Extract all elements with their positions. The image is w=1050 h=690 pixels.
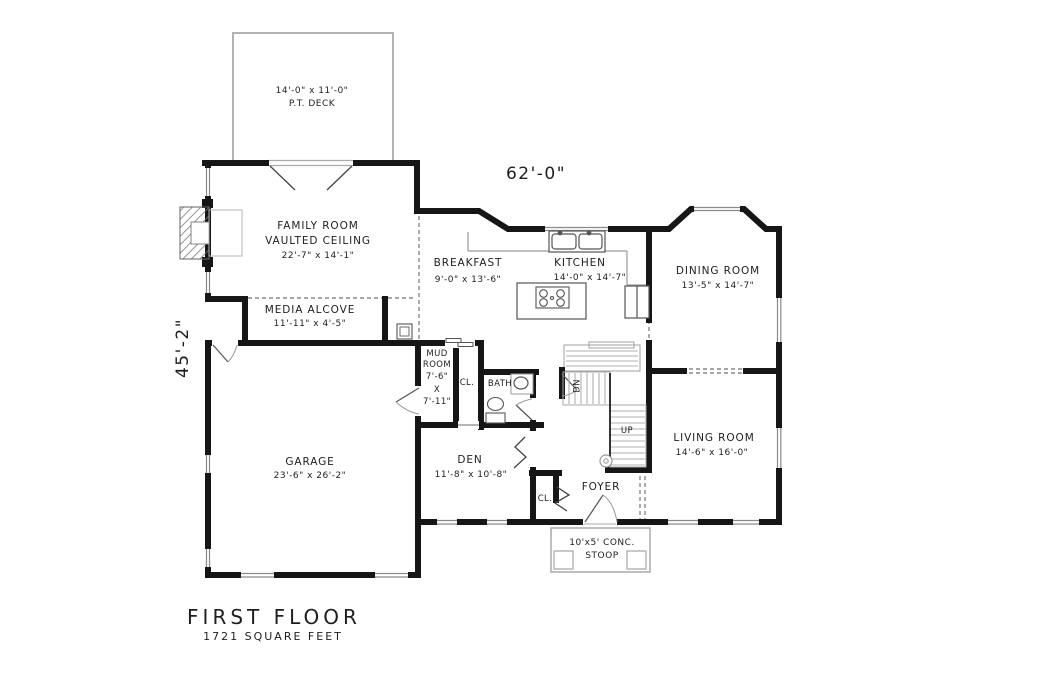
dining-room-label: DINING ROOM <box>676 266 760 277</box>
stoop-outline <box>551 528 650 572</box>
garage-mud-door <box>396 386 422 416</box>
media-alcove-dims: 11'-11" x 4'-5" <box>274 320 347 329</box>
hearth <box>209 210 242 256</box>
floor-plan-drawing <box>0 0 1050 690</box>
garage-label: GARAGE <box>285 457 334 468</box>
bay-window <box>694 205 740 213</box>
overall-depth-dimension: 45'-2" <box>175 318 193 378</box>
stairs-up-label: UP <box>621 427 633 436</box>
living-side-window <box>775 428 783 468</box>
media-alcove-label: MEDIA ALCOVE <box>265 305 355 316</box>
stoop-dims: 10'x5' CONC. <box>569 539 635 548</box>
deck-outline <box>233 33 393 161</box>
bath-label: BATH <box>488 380 512 389</box>
family-room-dims: 22'-7" x 14'-1" <box>282 252 355 261</box>
mud-closet-label: CL. <box>460 379 475 388</box>
stoop-post-right <box>627 551 646 569</box>
mud-room-dims-2: 7'-11" <box>423 398 451 407</box>
dining-side-window <box>775 298 783 342</box>
breakfast-dims: 9'-0" x 13'-6" <box>435 276 501 285</box>
breakfast-label: BREAKFAST <box>434 258 503 269</box>
foyer-living-opening <box>640 476 645 519</box>
mud-closet-opening <box>458 421 479 429</box>
overall-width-dimension: 62'-0" <box>506 166 566 184</box>
pantry-shelves <box>564 342 640 371</box>
mud-room-dims-1: 7'-6" <box>426 373 448 382</box>
mud-room-label-2: ROOM <box>423 361 451 370</box>
plan-title: FIRST FLOOR <box>187 607 361 628</box>
living-room-label: LIVING ROOM <box>673 433 754 444</box>
den-opening-zigzag <box>514 437 526 468</box>
kitchen-dims: 14'-0" x 14'-7" <box>554 274 627 283</box>
bath-door <box>516 398 537 420</box>
mud-room-dims-x: X <box>434 386 440 395</box>
media-equipment <box>397 324 412 339</box>
front-door <box>583 495 617 527</box>
firebox <box>191 222 209 244</box>
kitchen-island <box>517 283 586 319</box>
stairs-up-icon <box>610 405 646 467</box>
stairs-down-label: DN <box>574 379 583 393</box>
dining-room-dims: 13'-5" x 14'-7" <box>682 282 755 291</box>
stoop-name: STOOP <box>585 552 618 561</box>
deck-door <box>269 158 353 190</box>
family-room-label: FAMILY ROOM <box>277 221 358 232</box>
garage-dims: 23'-6" x 26'-2" <box>274 472 347 481</box>
den-dims: 11'-8" x 10'-8" <box>435 471 508 480</box>
newel-post <box>600 455 612 467</box>
living-room-dims: 14'-6" x 16'-0" <box>676 449 749 458</box>
kitchen-label: KITCHEN <box>554 258 606 269</box>
dining-living-opening <box>687 366 743 376</box>
garage-side-door <box>212 339 238 362</box>
mud-room-label-1: MUD <box>426 350 447 359</box>
refrigerator-icon <box>625 286 649 318</box>
deck-name: P.T. DECK <box>289 100 335 109</box>
mud-room-slider <box>445 338 475 348</box>
doors <box>212 338 743 527</box>
stoop-post-left <box>554 551 573 569</box>
den-label: DEN <box>457 455 482 466</box>
foyer-closet-label: CL. <box>538 495 553 504</box>
deck-dims: 14'-0" x 11'-0" <box>276 87 349 96</box>
toilet-icon <box>486 398 505 424</box>
foyer-label: FOYER <box>582 482 621 493</box>
bath-sink-icon <box>511 374 533 394</box>
plan-subtitle: 1721 SQUARE FEET <box>203 631 343 643</box>
kitchen-sink-icon <box>549 231 605 252</box>
floor-plan: 14'-0" x 11'-0" P.T. DECK 62'-0" 45'-2" … <box>0 0 1050 690</box>
family-room-note: VAULTED CEILING <box>265 236 371 247</box>
